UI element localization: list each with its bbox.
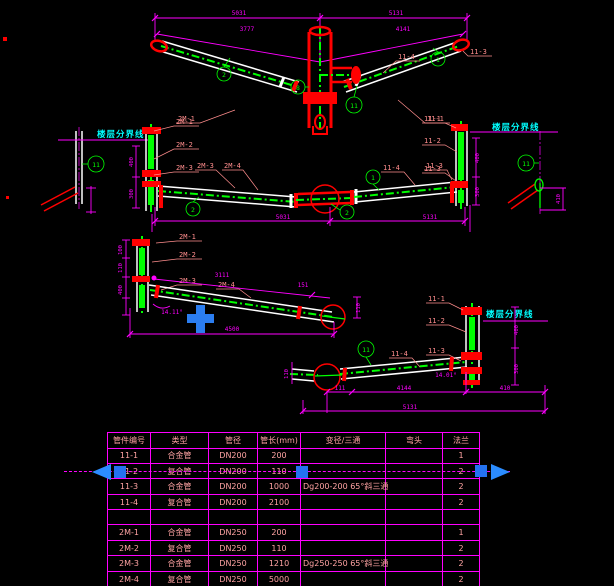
header-cell: 管径	[209, 433, 258, 449]
header-cell: 类型	[151, 433, 209, 449]
detail-left-riser-dims[interactable]: 100 110 400	[118, 240, 130, 315]
table-cell: 1	[443, 448, 479, 463]
part-balloon[interactable]: 11	[346, 86, 362, 113]
table-cell: 合金管	[151, 525, 209, 540]
table-cell: 2100	[258, 495, 301, 510]
part-balloon[interactable]: 1	[366, 170, 380, 190]
part-label[interactable]: 2M-1	[179, 233, 196, 241]
dim-text[interactable]: 4500	[225, 326, 240, 333]
table-cell	[386, 541, 443, 556]
pipe-end-fitting[interactable]	[452, 38, 470, 52]
table-cell: 200	[258, 525, 301, 540]
crosshair-cursor	[187, 305, 214, 333]
angle-text[interactable]: 14.01°	[435, 372, 457, 379]
table-cell	[301, 448, 386, 463]
table-cell: 2M-4	[108, 572, 151, 586]
dim-text[interactable]: 410	[556, 194, 562, 204]
part-label[interactable]: 11-4	[383, 164, 400, 172]
part-label[interactable]: 11-3	[428, 347, 445, 355]
horizontal-pipe-run[interactable]	[158, 182, 457, 213]
table-cell: 复合管	[151, 541, 209, 556]
table-cell: 2M-1	[108, 525, 151, 540]
elevation-view[interactable]: 11 楼层分界线 400 300 2M-1	[41, 115, 566, 232]
part-label[interactable]: 11-1	[428, 295, 445, 303]
artifact-dot	[3, 37, 7, 41]
angle-text[interactable]: 14.11°	[161, 309, 183, 316]
part-label[interactable]: 11-3	[470, 48, 487, 56]
part-label[interactable]: 2M-3	[197, 162, 214, 170]
table-cell: 200	[258, 448, 301, 463]
table-cell: 1	[443, 525, 479, 540]
balloon-number: 1	[436, 56, 440, 64]
dimension-bottom-left[interactable]: 4500	[127, 308, 337, 338]
table-cell	[258, 510, 301, 525]
table-cell	[386, 525, 443, 540]
part-label[interactable]: 2M-2	[176, 141, 193, 149]
part-label[interactable]: 11-4	[391, 350, 408, 358]
header-cell: 管件编号	[108, 433, 151, 449]
grip-handle[interactable]	[114, 466, 126, 478]
table-cell: Dg250-250 65°斜三通	[301, 556, 386, 571]
left-riser-dims[interactable]: 400 300	[129, 146, 140, 208]
dim-text[interactable]: 5131	[389, 10, 404, 17]
floor-line-label[interactable]: 楼层分界线	[486, 309, 534, 320]
table-cell	[301, 525, 386, 540]
table-cell: 11-4	[108, 495, 151, 510]
dim-text[interactable]: 4141	[396, 26, 411, 33]
balloon-number: 11	[92, 161, 100, 169]
table-cell: 11-1	[108, 448, 151, 463]
detail-right-labels[interactable]: 11-1 11-2 11-3 11-4	[389, 295, 466, 367]
balloon-number: 2	[345, 209, 349, 217]
detail-right-riser[interactable]	[461, 303, 482, 388]
part-label[interactable]: 11-3	[424, 165, 441, 173]
artifact-dot	[6, 196, 9, 199]
table-cell: 110	[258, 541, 301, 556]
part-balloon[interactable]: 2	[331, 204, 354, 219]
table-cell: 11-3	[108, 479, 151, 494]
dim-text[interactable]: 100	[118, 245, 124, 255]
table-cell: 1210	[258, 556, 301, 571]
detail-right-view[interactable]: 110 11-1 11-2 1	[284, 295, 548, 414]
table-cell	[443, 510, 479, 525]
table-cell	[301, 510, 386, 525]
table-cell	[386, 510, 443, 525]
table-cell: 2	[443, 541, 479, 556]
part-label[interactable]: 2M-3	[179, 277, 196, 285]
dim-text[interactable]: 300	[514, 364, 520, 374]
balloon-number: 11	[362, 346, 370, 354]
table-cell: DN250	[209, 541, 258, 556]
table-cell: DN200	[209, 448, 258, 463]
part-label[interactable]: 11-4	[398, 53, 415, 61]
grip-handle[interactable]	[296, 466, 308, 478]
dimension-drop-left[interactable]: 110	[353, 297, 362, 318]
table-cell: 合金管	[151, 448, 209, 463]
table-cell: 2	[443, 495, 479, 510]
balloon-number: 11	[350, 102, 358, 110]
table-cell: 复合管	[151, 495, 209, 510]
table-cell: 2M-3	[108, 556, 151, 571]
balloon-number: 8	[296, 84, 300, 92]
balloon-number: 2	[191, 206, 195, 214]
table-cell	[386, 479, 443, 494]
pipe-end-fitting[interactable]	[150, 39, 168, 53]
balloon-number: 1	[371, 174, 375, 182]
dim-text[interactable]: 300	[129, 189, 135, 199]
table-cell	[108, 510, 151, 525]
dim-text[interactable]: 5131	[403, 404, 418, 411]
table-cell: DN250	[209, 572, 258, 586]
header-cell: 法兰	[443, 433, 479, 449]
table-cell	[209, 510, 258, 525]
dim-text[interactable]: 3111	[215, 272, 230, 279]
table-cell: 复合管	[151, 572, 209, 586]
dimension-bottom-right[interactable]: 111 4144 410 5131	[300, 372, 548, 414]
dim-text[interactable]: 300	[475, 187, 481, 197]
dim-text[interactable]: 5031	[232, 10, 247, 17]
dim-text[interactable]: 5131	[423, 214, 438, 221]
table-cell: Dg200-200 65°斜三通	[301, 479, 386, 494]
branch-fitting[interactable]	[351, 66, 361, 84]
dim-text[interactable]: 4144	[397, 385, 412, 392]
floor-line-label[interactable]: 楼层分界线	[97, 129, 145, 140]
dim-text[interactable]: 111	[335, 385, 346, 392]
stub-pipe[interactable]: 110	[284, 362, 318, 384]
table-cell	[386, 448, 443, 463]
dim-text[interactable]: 400	[118, 285, 124, 295]
center-column-pipe[interactable]	[303, 26, 361, 134]
dim-text[interactable]: 110	[284, 369, 290, 379]
table-cell	[386, 572, 443, 586]
dim-text[interactable]: 151	[298, 282, 309, 289]
part-label[interactable]: 2M-2	[179, 251, 196, 259]
dim-text[interactable]: 400	[514, 325, 520, 335]
right-riser-dims[interactable]: 400 300	[472, 138, 481, 205]
table-cell: 合金管	[151, 556, 209, 571]
table-cell	[301, 495, 386, 510]
left-riser-labels[interactable]: 2M-1 2M-2 2M-3	[154, 118, 199, 175]
inclined-pipe-left[interactable]	[149, 285, 345, 329]
selected-dashed-line[interactable]	[64, 471, 510, 472]
table-cell: 2	[443, 556, 479, 571]
grip-handle[interactable]	[475, 465, 487, 477]
right-riser-pipe[interactable]	[451, 121, 470, 232]
header-cell: 变径/三通	[301, 433, 386, 449]
parts-table[interactable]: 管件编号 类型 管径 管长(mm) 变径/三通 弯头 法兰 11-1 合金管 D…	[107, 432, 480, 586]
flow-arrow-left[interactable]	[92, 464, 111, 480]
dimension-elevation[interactable]: 5031 5131	[152, 207, 468, 226]
part-label[interactable]: 11-2	[428, 317, 445, 325]
table-cell	[301, 541, 386, 556]
table-cell: DN200	[209, 479, 258, 494]
dim-text[interactable]: 410	[500, 385, 511, 392]
table-cell: 2	[443, 572, 479, 586]
detail-left-view[interactable]: 100 110 400 2M-1 2M-2 2M-3 2M-4	[118, 233, 362, 338]
table-cell	[151, 510, 209, 525]
dim-text[interactable]: 400	[129, 157, 135, 167]
part-label[interactable]: 11-2	[424, 137, 441, 145]
right-arm-pipe[interactable]	[342, 38, 470, 92]
right-support-bracket[interactable]: 410	[508, 131, 566, 214]
table-cell: 5000	[258, 572, 301, 586]
table-cell: DN250	[209, 556, 258, 571]
floor-line-label[interactable]: 楼层分界线	[492, 122, 540, 133]
dim-text[interactable]: 110	[356, 303, 362, 313]
balloon-number: 2	[222, 71, 226, 79]
left-arm-pipe[interactable]	[150, 39, 299, 92]
table-cell: 1000	[258, 479, 301, 494]
part-balloon[interactable]: 11	[518, 155, 539, 171]
table-cell	[386, 556, 443, 571]
table-cell: 2	[443, 479, 479, 494]
part-balloon[interactable]: 11	[358, 341, 374, 365]
table-cell: DN250	[209, 525, 258, 540]
pipe-collar[interactable]	[303, 92, 337, 104]
dim-text[interactable]: 400	[475, 153, 481, 163]
part-balloon[interactable]: 11	[82, 156, 104, 172]
cad-viewport: 5031 5131 3777 4141	[0, 0, 614, 586]
part-label[interactable]: 11-1	[424, 115, 441, 123]
header-cell: 管长(mm)	[258, 433, 301, 449]
table-cell: 2M-2	[108, 541, 151, 556]
dim-text[interactable]: 3777	[240, 26, 255, 33]
flow-arrow-right[interactable]	[491, 464, 510, 480]
table-cell	[386, 495, 443, 510]
detail-left-riser[interactable]	[132, 236, 150, 315]
part-label[interactable]: 2M-3	[176, 164, 193, 172]
table-cell	[301, 572, 386, 586]
part-label[interactable]: 2M-4	[224, 162, 241, 170]
dim-text[interactable]: 5031	[276, 214, 291, 221]
dim-text[interactable]: 110	[118, 263, 124, 273]
part-label[interactable]: 2M-1	[176, 118, 193, 126]
header-cell: 弯头	[386, 433, 443, 449]
balloon-number: 11	[522, 160, 530, 168]
table-cell: DN200	[209, 495, 258, 510]
table-cell: 合金管	[151, 479, 209, 494]
